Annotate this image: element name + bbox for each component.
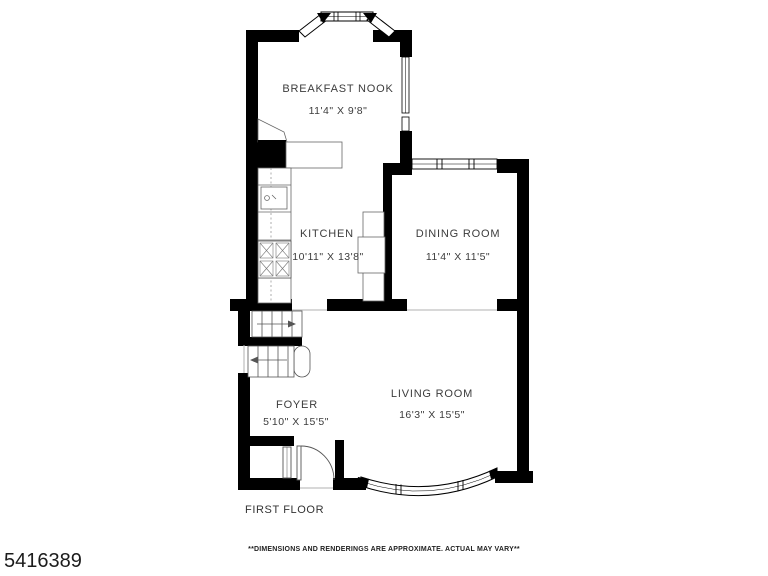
- front-door-leaf: [297, 446, 301, 480]
- bow-window: [356, 468, 497, 496]
- wall-door-stub: [335, 440, 344, 482]
- wall-nook-top-left: [246, 30, 299, 42]
- wall-nook-right-upper: [400, 40, 412, 57]
- wall-living-bottom-right: [495, 471, 533, 483]
- floorplan-drawing: BREAKFAST NOOK 11'4" X 9'8" KITCHEN 10'1…: [0, 0, 768, 576]
- dining-window: [412, 159, 497, 169]
- angled-cabinet: [258, 119, 287, 142]
- dining-room-dims: 11'4" X 11'5": [426, 251, 490, 263]
- stove: [258, 241, 291, 278]
- foyer-label: FOYER: [276, 399, 318, 411]
- front-door-swing-arc: [301, 446, 334, 480]
- wall-right-exterior: [517, 159, 529, 483]
- foyer-doors: [283, 446, 334, 480]
- floor-title: FIRST FLOOR: [245, 504, 324, 516]
- stair-newel: [294, 346, 310, 377]
- floorplan-page: BREAKFAST NOOK 11'4" X 9'8" KITCHEN 10'1…: [0, 0, 768, 576]
- wall-foyer-left-upper: [238, 311, 250, 345]
- kitchen-label: KITCHEN: [300, 228, 354, 240]
- foyer-dims: 5'10" X 15'5": [263, 416, 329, 428]
- listing-id: 5416389: [4, 550, 82, 573]
- living-room-label: LIVING ROOM: [391, 388, 473, 400]
- wall-nook-kitchen-left: [246, 30, 258, 311]
- living-room-dims: 16'3" X 15'5": [399, 409, 465, 421]
- breakfast-nook-dims: 11'4" X 9'8": [309, 105, 368, 117]
- dining-room-label: DINING ROOM: [416, 228, 501, 240]
- breakfast-nook-label: BREAKFAST NOOK: [282, 83, 393, 95]
- closet-door: [283, 447, 291, 478]
- front-door: [297, 446, 334, 480]
- peninsula-wall-stub: [258, 140, 286, 168]
- nook-side-window: [402, 57, 409, 131]
- peninsula-counter: [286, 142, 342, 168]
- wall-dining-bottom-stub: [497, 299, 517, 311]
- kitchen-fixtures: [258, 119, 385, 303]
- disclaimer-text: **DIMENSIONS AND RENDERINGS ARE APPROXIM…: [0, 546, 768, 553]
- wall-foyer-left-lower: [238, 373, 250, 490]
- wall-bottom-left: [238, 478, 300, 490]
- kitchen-dims: 10'11" X 13'8": [292, 251, 363, 263]
- sink: [261, 187, 287, 209]
- wall-closet-top: [238, 436, 294, 446]
